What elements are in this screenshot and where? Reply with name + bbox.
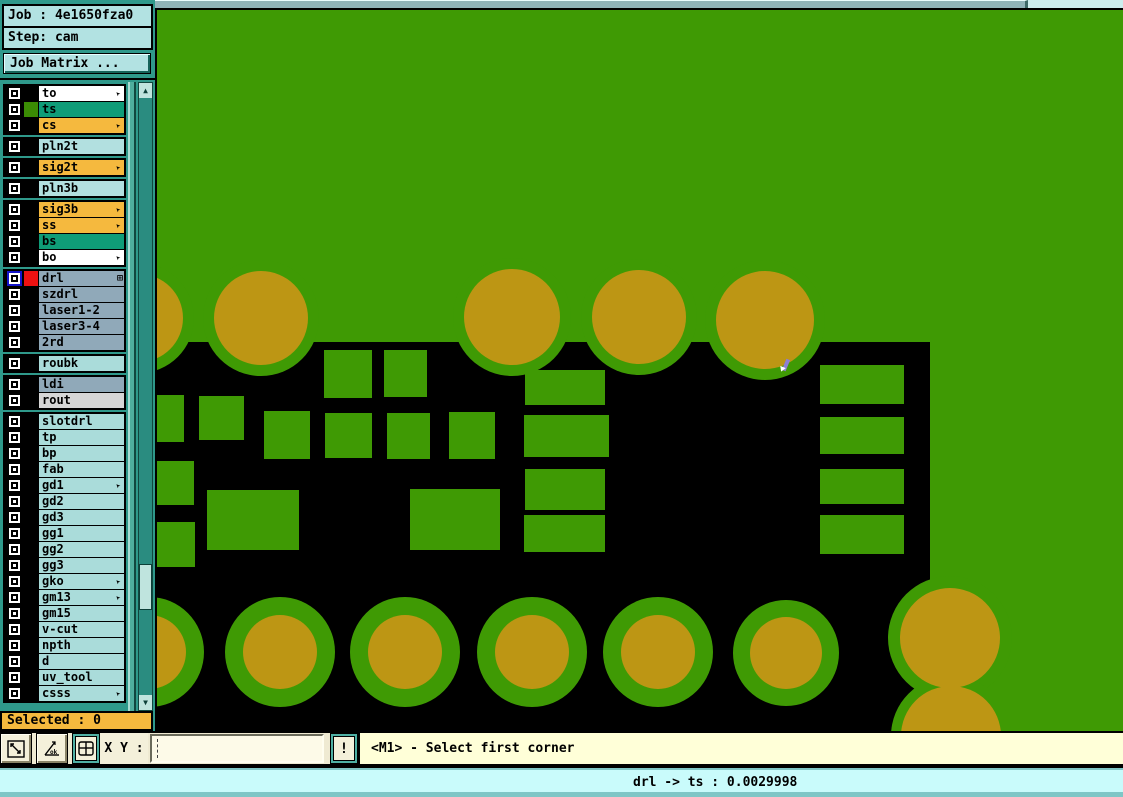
app-window: Job : 4e1650fza0 Step: cam Job Matrix ..…	[0, 0, 1123, 797]
layer-label[interactable]: szdrl	[38, 287, 124, 302]
layer-row-ldi[interactable]: ldi	[5, 377, 124, 393]
drill-pad	[368, 615, 442, 689]
layer-row-uv_tool[interactable]: uv_tool	[5, 670, 124, 686]
layer-checkbox[interactable]	[5, 202, 24, 217]
layer-checkbox[interactable]	[5, 670, 24, 685]
layer-checkbox[interactable]	[5, 638, 24, 653]
measure-distance-button[interactable]	[0, 733, 32, 764]
layer-color-swatch[interactable]	[24, 139, 38, 154]
layer-label[interactable]: sig3b➤	[38, 202, 124, 217]
layer-group: pln3b	[3, 179, 126, 198]
xy-label: X Y :	[100, 733, 148, 764]
layer-label[interactable]: laser3-4	[38, 319, 124, 334]
layer-checkbox[interactable]	[5, 319, 24, 334]
layer-group: slotdrltpbpfabgd1➤gd2gd3gg1gg2gg3gko➤gm1…	[3, 412, 126, 703]
layer-row-gd2[interactable]: gd2	[5, 494, 124, 510]
layer-label[interactable]: ldi	[38, 377, 124, 392]
layer-row-bs[interactable]: bs	[5, 234, 124, 250]
layer-row-bo[interactable]: bo➤	[5, 250, 124, 265]
layer-label[interactable]: npth	[38, 638, 124, 653]
layer-checkbox[interactable]	[5, 287, 24, 302]
layer-row-rout[interactable]: rout	[5, 393, 124, 408]
sidebar-splitter[interactable]	[128, 82, 136, 711]
layer-row-to[interactable]: to➤	[5, 86, 124, 102]
measure-angle-icon: ok	[42, 739, 62, 759]
layer-checkbox[interactable]	[5, 139, 24, 154]
drill-pad	[716, 271, 814, 369]
layer-arrow-icon: ➤	[113, 576, 123, 586]
drill-pad	[214, 271, 308, 365]
layer-checkbox[interactable]	[5, 446, 24, 461]
layer-list: to➤tscs➤pln2tsig2t➤pln3bsig3b➤ss➤bsbo➤dr…	[3, 84, 126, 705]
layer-checkbox[interactable]	[5, 558, 24, 573]
layer-label[interactable]: tp	[38, 430, 124, 445]
layer-color-swatch[interactable]	[24, 606, 38, 621]
layer-row-d[interactable]: d	[5, 654, 124, 670]
drill-pad	[243, 615, 317, 689]
smd-pad	[157, 461, 194, 505]
layer-group: sig3b➤ss➤bsbo➤	[3, 200, 126, 267]
layer-checkbox[interactable]	[5, 86, 24, 101]
layer-row-sig3b[interactable]: sig3b➤	[5, 202, 124, 218]
layer-arrow-icon: ➤	[113, 252, 123, 262]
layer-checkbox[interactable]	[5, 462, 24, 477]
layer-checkbox[interactable]	[5, 118, 24, 133]
layer-label[interactable]: bp	[38, 446, 124, 461]
layer-checkbox[interactable]	[5, 542, 24, 557]
layer-row-slotdrl[interactable]: slotdrl	[5, 414, 124, 430]
layer-arrow-icon: ➤	[113, 120, 123, 130]
pcb-canvas[interactable]	[155, 8, 1123, 731]
layer-label[interactable]: cs➤	[38, 118, 124, 133]
measure-distance-icon	[6, 739, 26, 759]
layer-checkbox[interactable]	[5, 218, 24, 233]
layer-checkbox[interactable]	[5, 590, 24, 605]
smd-pad	[524, 515, 605, 552]
drill-pad	[750, 617, 822, 689]
layer-label[interactable]: laser1-2	[38, 303, 124, 318]
layer-label[interactable]: gko➤	[38, 574, 124, 589]
layer-arrow-icon: ➤	[113, 88, 123, 98]
layer-color-swatch[interactable]	[24, 590, 38, 605]
smd-pad	[449, 412, 495, 459]
layer-color-swatch[interactable]	[24, 686, 38, 701]
layer-row-laser1-2[interactable]: laser1-2	[5, 303, 124, 319]
layer-arrow-icon: ➤	[113, 592, 123, 602]
layer-row-roubk[interactable]: roubk	[5, 356, 124, 371]
layer-color-swatch[interactable]	[24, 446, 38, 461]
layer-row-szdrl[interactable]: szdrl	[5, 287, 124, 303]
layer-color-swatch[interactable]	[24, 526, 38, 541]
layer-row-csss[interactable]: csss➤	[5, 686, 124, 701]
layer-label[interactable]: rout	[38, 393, 124, 408]
smd-pad	[820, 365, 904, 404]
layer-label[interactable]: gg3	[38, 558, 124, 573]
layer-label[interactable]: gm15	[38, 606, 124, 621]
layer-arrow-icon: ➤	[113, 220, 123, 230]
layer-color-swatch[interactable]	[24, 478, 38, 493]
layer-row-drl[interactable]: drl⊞	[5, 271, 124, 287]
layer-row-fab[interactable]: fab	[5, 462, 124, 478]
layer-label[interactable]: gg2	[38, 542, 124, 557]
smd-pad	[384, 350, 427, 397]
text-caret	[157, 739, 158, 758]
layer-color-swatch[interactable]	[24, 250, 38, 265]
status-bar: drl -> ts : 0.0029998	[0, 766, 1123, 797]
layer-label[interactable]: gd3	[38, 510, 124, 525]
smd-pad	[820, 515, 904, 554]
layer-arrow-icon: ➤	[113, 162, 123, 172]
layer-arrow-icon: ➤	[113, 204, 123, 214]
layer-color-swatch[interactable]	[24, 574, 38, 589]
drill-pad	[621, 615, 695, 689]
smd-pad	[525, 469, 605, 510]
layer-checkbox[interactable]	[5, 686, 24, 701]
layer-label[interactable]: uv_tool	[38, 670, 124, 685]
smd-pad	[325, 413, 372, 458]
svg-text:ok: ok	[50, 749, 58, 756]
grid-window-button[interactable]	[72, 733, 100, 764]
layer-checkbox[interactable]	[5, 606, 24, 621]
layer-row-pln2t[interactable]: pln2t	[5, 139, 124, 154]
layer-color-swatch[interactable]	[24, 335, 38, 350]
layer-color-swatch[interactable]	[24, 377, 38, 392]
layer-checkbox[interactable]	[5, 377, 24, 392]
layer-color-swatch[interactable]	[24, 558, 38, 573]
layer-row-gm15[interactable]: gm15	[5, 606, 124, 622]
selected-count-bar: Selected : 0	[0, 711, 153, 731]
layer-checkbox[interactable]	[5, 478, 24, 493]
measure-angle-button[interactable]: ok	[36, 733, 68, 764]
layer-label[interactable]: gg1	[38, 526, 124, 541]
layer-color-swatch[interactable]	[24, 319, 38, 334]
layer-row-cs[interactable]: cs➤	[5, 118, 124, 133]
xy-input[interactable]	[150, 734, 324, 763]
layer-row-gg3[interactable]: gg3	[5, 558, 124, 574]
layer-row-pln3b[interactable]: pln3b	[5, 181, 124, 196]
layer-label[interactable]: sig2t➤	[38, 160, 124, 175]
layer-checkbox[interactable]	[5, 654, 24, 669]
layer-arrow-icon: ➤	[113, 688, 123, 698]
layer-checkbox[interactable]	[5, 414, 24, 429]
layer-color-swatch[interactable]	[24, 494, 38, 509]
layer-checkbox[interactable]	[5, 510, 24, 525]
layer-color-swatch[interactable]	[24, 414, 38, 429]
prompt-message-bar: <M1> - Select first corner	[358, 733, 1123, 764]
layer-checkbox[interactable]	[5, 271, 24, 286]
layer-color-swatch[interactable]	[24, 430, 38, 445]
layer-row-sig2t[interactable]: sig2t➤	[5, 160, 124, 175]
layer-checkbox[interactable]	[5, 102, 24, 117]
layer-checkbox[interactable]	[5, 430, 24, 445]
layer-color-swatch[interactable]	[24, 393, 38, 408]
smd-pad	[524, 415, 609, 457]
layer-grid-icon: ⊞	[117, 271, 123, 286]
layer-color-swatch[interactable]	[24, 86, 38, 101]
layer-color-swatch[interactable]	[24, 118, 38, 133]
job-label: Job : 4e1650fza0	[4, 6, 151, 28]
layer-checkbox[interactable]	[5, 181, 24, 196]
grid-window-icon	[76, 739, 96, 759]
scroll-down-icon[interactable]: ▼	[139, 695, 152, 710]
layer-color-swatch[interactable]	[24, 622, 38, 637]
vscroll-thumb[interactable]	[139, 564, 152, 610]
layer-color-swatch[interactable]	[24, 160, 38, 175]
layer-row-gd1[interactable]: gd1➤	[5, 478, 124, 494]
layer-row-tp[interactable]: tp	[5, 430, 124, 446]
smd-pad	[387, 413, 430, 459]
layer-label[interactable]: gm13➤	[38, 590, 124, 605]
layer-label[interactable]: pln3b	[38, 181, 124, 196]
layer-row-bp[interactable]: bp	[5, 446, 124, 462]
layer-checkbox[interactable]	[5, 250, 24, 265]
bottom-toolbar: ok X Y : ! <M1> - Select first corner	[0, 731, 1123, 766]
layer-label[interactable]: slotdrl	[38, 414, 124, 429]
alert-icon: !	[340, 742, 348, 756]
status-measure-text: drl -> ts : 0.0029998	[633, 775, 797, 790]
layer-group: ldirout	[3, 375, 126, 410]
layer-row-v-cut[interactable]: v-cut	[5, 622, 124, 638]
layer-color-swatch[interactable]	[24, 510, 38, 525]
smd-pad	[207, 490, 299, 550]
layer-checkbox[interactable]	[5, 526, 24, 541]
layer-row-ss[interactable]: ss➤	[5, 218, 124, 234]
layer-color-swatch[interactable]	[24, 654, 38, 669]
layer-label[interactable]: bs	[38, 234, 124, 249]
layer-color-swatch[interactable]	[24, 287, 38, 302]
layer-label[interactable]: pln2t	[38, 139, 124, 154]
layer-color-swatch[interactable]	[24, 542, 38, 557]
layer-color-swatch[interactable]	[24, 102, 38, 117]
smd-pad	[264, 411, 310, 459]
layer-color-swatch[interactable]	[24, 462, 38, 477]
smd-pad	[410, 489, 500, 550]
drill-pad	[495, 615, 569, 689]
smd-pad	[525, 370, 605, 405]
layer-label[interactable]: drl⊞	[38, 271, 124, 286]
layer-checkbox[interactable]	[5, 335, 24, 350]
smd-pad	[157, 395, 184, 442]
layer-checkbox[interactable]	[5, 303, 24, 318]
layer-checkbox[interactable]	[5, 574, 24, 589]
layer-group: to➤tscs➤	[3, 84, 126, 135]
layer-checkbox[interactable]	[5, 356, 24, 371]
smd-pad	[324, 350, 372, 398]
layer-label[interactable]: bo➤	[38, 250, 124, 265]
layer-checkbox[interactable]	[5, 622, 24, 637]
layer-color-swatch[interactable]	[24, 202, 38, 217]
smd-pad	[157, 522, 195, 567]
drill-pad	[900, 588, 1000, 688]
layer-checkbox[interactable]	[5, 234, 24, 249]
layer-arrow-icon: ➤	[113, 480, 123, 490]
layer-row-gg1[interactable]: gg1	[5, 526, 124, 542]
smd-pad	[820, 417, 904, 454]
layer-group: drl⊞szdrllaser1-2laser3-42rd	[3, 269, 126, 352]
layer-color-swatch[interactable]	[24, 234, 38, 249]
drill-pad	[464, 269, 560, 365]
layer-row-gm13[interactable]: gm13➤	[5, 590, 124, 606]
layer-checkbox[interactable]	[5, 494, 24, 509]
layer-row-2rd[interactable]: 2rd	[5, 335, 124, 350]
step-label: Step: cam	[4, 28, 151, 48]
layer-label[interactable]: roubk	[38, 356, 124, 371]
smd-pad	[199, 396, 244, 440]
layer-row-npth[interactable]: npth	[5, 638, 124, 654]
layer-group: roubk	[3, 354, 126, 373]
layer-label[interactable]: to➤	[38, 86, 124, 101]
layer-row-ts[interactable]: ts	[5, 102, 124, 118]
layer-label[interactable]: gd1➤	[38, 478, 124, 493]
job-panel: Job : 4e1650fza0 Step: cam	[2, 4, 153, 50]
job-matrix-button[interactable]: Job Matrix ...	[3, 53, 151, 74]
layer-group: pln2t	[3, 137, 126, 156]
layer-label[interactable]: gd2	[38, 494, 124, 509]
layer-color-swatch[interactable]	[24, 670, 38, 685]
layer-group: sig2t➤	[3, 158, 126, 177]
scroll-up-icon[interactable]: ▲	[139, 83, 152, 98]
layer-row-gg2[interactable]: gg2	[5, 542, 124, 558]
layer-color-swatch[interactable]	[24, 303, 38, 318]
layer-label[interactable]: d	[38, 654, 124, 669]
layer-label[interactable]: ts	[38, 102, 124, 117]
layer-checkbox[interactable]	[5, 160, 24, 175]
layer-label[interactable]: 2rd	[38, 335, 124, 350]
smd-pad	[820, 469, 904, 504]
layer-row-gko[interactable]: gko➤	[5, 574, 124, 590]
layer-label[interactable]: csss➤	[38, 686, 124, 701]
layer-color-swatch[interactable]	[24, 271, 38, 286]
layer-label[interactable]: fab	[38, 462, 124, 477]
layer-color-swatch[interactable]	[24, 181, 38, 196]
layer-row-laser3-4[interactable]: laser3-4	[5, 319, 124, 335]
layer-label[interactable]: ss➤	[38, 218, 124, 233]
alert-button[interactable]: !	[330, 733, 358, 764]
layer-color-swatch[interactable]	[24, 356, 38, 371]
layer-list-scrollbar[interactable]: ▲ ▼	[138, 82, 153, 711]
layer-checkbox[interactable]	[5, 393, 24, 408]
layer-color-swatch[interactable]	[24, 218, 38, 233]
layer-row-gd3[interactable]: gd3	[5, 510, 124, 526]
layer-color-swatch[interactable]	[24, 638, 38, 653]
layer-label[interactable]: v-cut	[38, 622, 124, 637]
drill-pad	[592, 270, 686, 364]
hscroll-thumb[interactable]	[155, 0, 1028, 8]
